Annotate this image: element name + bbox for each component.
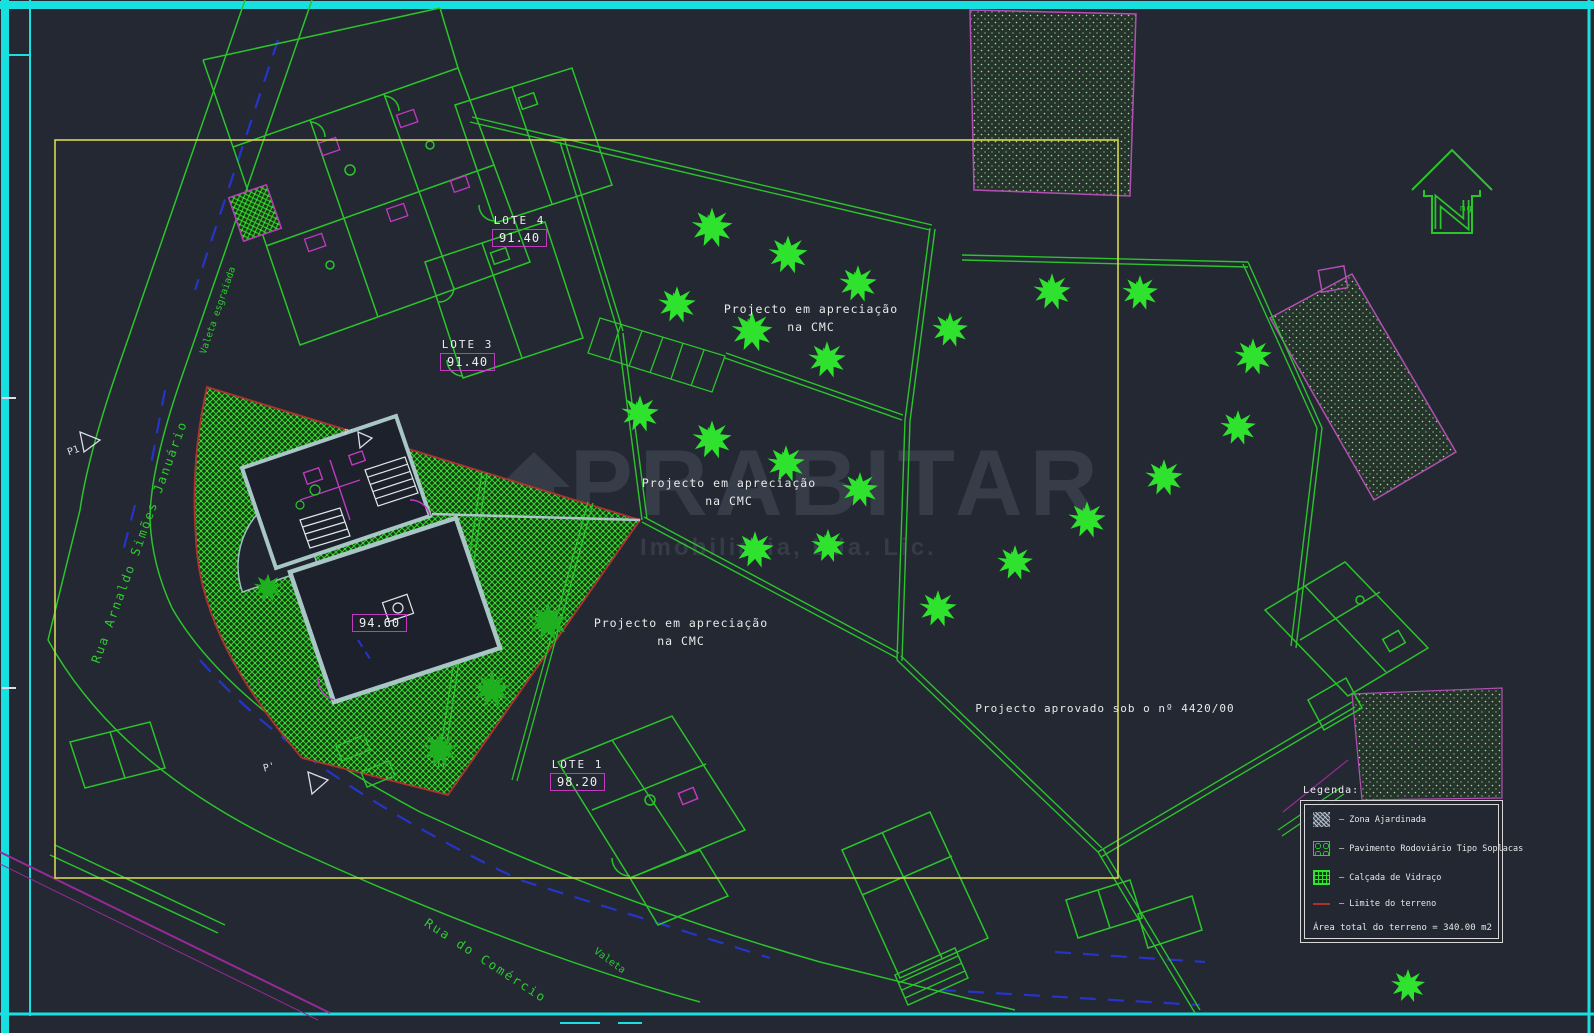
stippled-zones [970, 10, 1502, 800]
lote1-label: LOTE 1 98.20 [550, 758, 605, 791]
pavimento-soplacas-swatch [1313, 841, 1330, 856]
approved-note: Projecto aprovado sob o nº 4420/00 [950, 702, 1260, 715]
pending-note-mid: Projecto em apreciaçãona CMC [604, 474, 854, 511]
pending-note-top: Projecto em apreciaçãona CMC [686, 300, 936, 337]
cad-site-plan: { "lots": { "lote4": {"name": "LOTE 4", … [0, 0, 1594, 1033]
lote3-area-value: 91.40 [440, 353, 495, 371]
lote1-area-value: 98.20 [550, 773, 605, 791]
terraced-houses [203, 8, 530, 345]
legend-title: Legenda: [1303, 785, 1359, 796]
legend-item-calcada: — Calçada de Vidraço [1313, 870, 1492, 885]
main-house-value: 94.60 [352, 614, 407, 632]
lote3-label: LOTE 3 91.40 [440, 338, 495, 371]
hatch-square [229, 185, 282, 242]
main-house-label: 94.60 [352, 614, 407, 632]
lote4-area-value: 91.40 [492, 229, 547, 247]
north-arrow-icon [1412, 150, 1492, 233]
legend-box: — Zona Ajardinada — Pavimento Rodoviário… [1300, 800, 1503, 943]
limite-terreno-swatch [1313, 903, 1330, 905]
legend-item-zona: — Zona Ajardinada [1313, 812, 1492, 827]
zona-ajardinada-swatch [1313, 812, 1330, 827]
calcada-vidraco-swatch [1313, 870, 1330, 885]
legend-item-limite: — Limite do terreno [1313, 899, 1492, 909]
bottom-right-buildings [70, 722, 1202, 1005]
north-arrow-initials: mg [1460, 204, 1473, 214]
lote1-house [558, 716, 745, 925]
legend-item-pavimento: — Pavimento Rodoviário Tipo Soplacas [1313, 841, 1492, 856]
lote4-label: LOTE 4 91.40 [492, 214, 547, 247]
terraced-houses-details [305, 109, 470, 251]
section-marker-p-prime-small: P' [344, 428, 354, 437]
lote4-house [455, 68, 612, 223]
pending-note-low: Projecto em apreciaçãona CMC [556, 614, 806, 651]
legend-area-total: Área total do terreno = 340.00 m2 [1313, 923, 1492, 933]
